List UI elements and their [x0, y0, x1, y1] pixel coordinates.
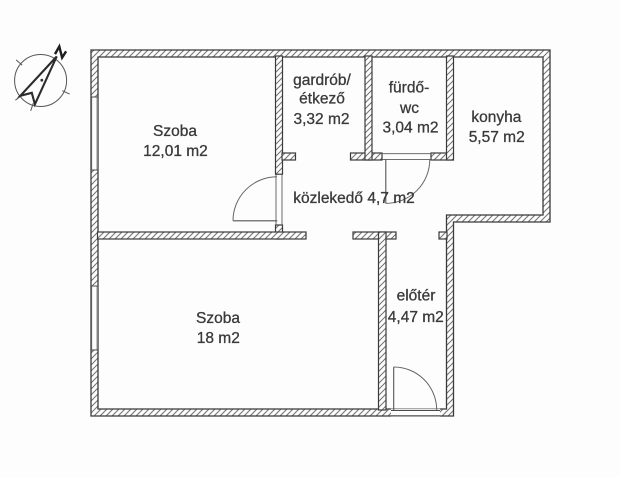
svg-text:4,47 m2: 4,47 m2: [388, 309, 444, 326]
svg-text:közlekedő 4,7 m2: közlekedő 4,7 m2: [293, 190, 415, 207]
svg-text:étkező: étkező: [299, 91, 345, 108]
svg-text:előtér: előtér: [397, 288, 436, 305]
svg-text:Szoba: Szoba: [196, 310, 240, 327]
svg-text:konyha: konyha: [471, 109, 521, 126]
svg-text:3,04 m2: 3,04 m2: [382, 120, 438, 137]
svg-text:5,57 m2: 5,57 m2: [469, 129, 525, 146]
svg-text:fürdő-: fürdő-: [389, 80, 430, 97]
svg-text:wc: wc: [399, 100, 419, 117]
svg-text:gardrób/: gardrób/: [293, 72, 351, 89]
svg-text:12,01 m2: 12,01 m2: [143, 143, 208, 160]
svg-text:18 m2: 18 m2: [197, 330, 240, 347]
svg-text:Szoba: Szoba: [153, 123, 197, 140]
svg-text:3,32 m2: 3,32 m2: [293, 111, 349, 128]
